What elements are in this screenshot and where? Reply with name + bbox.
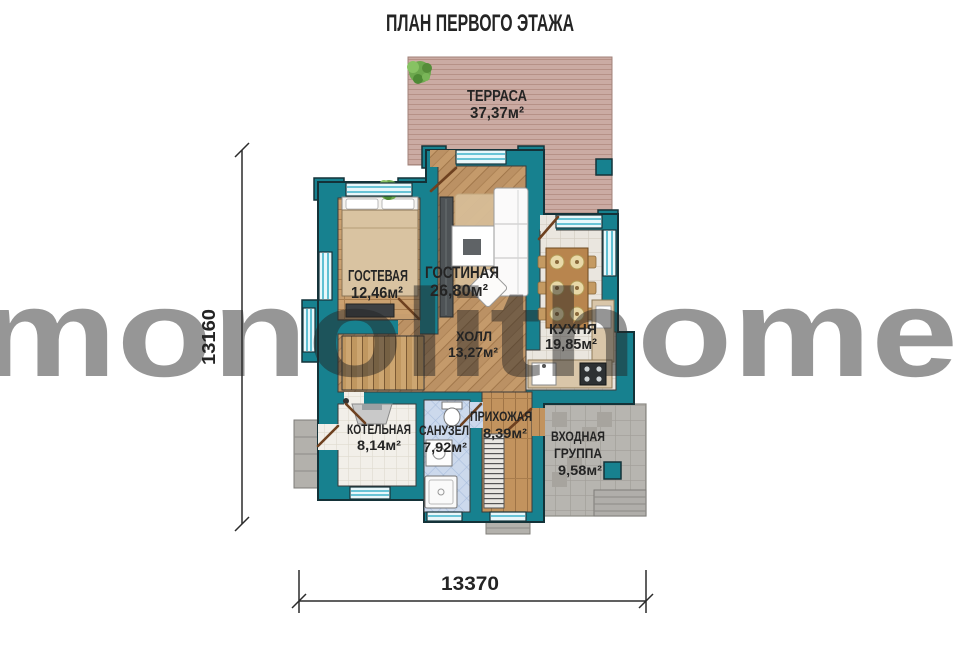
window-boiler-bottom bbox=[350, 487, 390, 499]
hallway-area: 8,39м² bbox=[483, 425, 527, 441]
living-label: ГОСТИНАЯ bbox=[425, 263, 499, 282]
boiler-area: 8,14м² bbox=[357, 437, 401, 453]
left-porch-steps bbox=[294, 420, 318, 488]
floor-plan-page: monolithome ТЕРРАСА 37,37м² ГОСТЕВАЯ 12,… bbox=[0, 0, 960, 669]
ladder-radiator bbox=[484, 434, 504, 508]
kitchen-area: 19,85м² bbox=[545, 336, 597, 353]
entrance-label-line2: ГРУППА bbox=[554, 445, 602, 461]
hall-area: 13,27м² bbox=[448, 344, 498, 360]
floor-plan-drawing: monolithome ТЕРРАСА 37,37м² ГОСТЕВАЯ 12,… bbox=[0, 0, 960, 669]
entrance-steps bbox=[594, 490, 646, 516]
hallway-label: ПРИХОЖАЯ bbox=[470, 408, 532, 424]
door-hallway-bottom bbox=[490, 512, 526, 521]
dimension-height-label: 13160 bbox=[199, 309, 219, 365]
living-area: 26,80м² bbox=[430, 281, 488, 300]
terrace-label: ТЕРРАСА bbox=[467, 88, 527, 105]
hall-label: ХОЛЛ bbox=[456, 328, 492, 344]
bathroom-area: 7,92м² bbox=[423, 439, 467, 455]
guest-area: 12,46м² bbox=[351, 285, 403, 302]
terrace-post bbox=[596, 159, 612, 175]
window-guest-top bbox=[346, 183, 412, 196]
hallway-exit-steps bbox=[486, 522, 530, 534]
shower bbox=[425, 476, 457, 508]
guest-label: ГОСТЕВАЯ bbox=[348, 268, 408, 285]
terrace-area: 37,37м² bbox=[470, 105, 524, 122]
dimension-width-label: 13370 bbox=[441, 574, 499, 595]
window-living-top bbox=[456, 150, 506, 164]
bathroom-label: САНУЗЕЛ bbox=[419, 422, 469, 438]
window-kitchen-top bbox=[556, 215, 602, 228]
boiler-label: КОТЕЛЬНАЯ bbox=[347, 421, 411, 437]
page-title: ПЛАН ПЕРВОГО ЭТАЖА bbox=[386, 10, 574, 37]
window-bathroom-bottom bbox=[427, 512, 462, 521]
entrance-post bbox=[604, 462, 621, 479]
entrance-area: 9,58м² bbox=[558, 462, 602, 478]
entrance-label-line1: ВХОДНАЯ bbox=[551, 428, 605, 444]
coffee-table bbox=[452, 226, 494, 266]
